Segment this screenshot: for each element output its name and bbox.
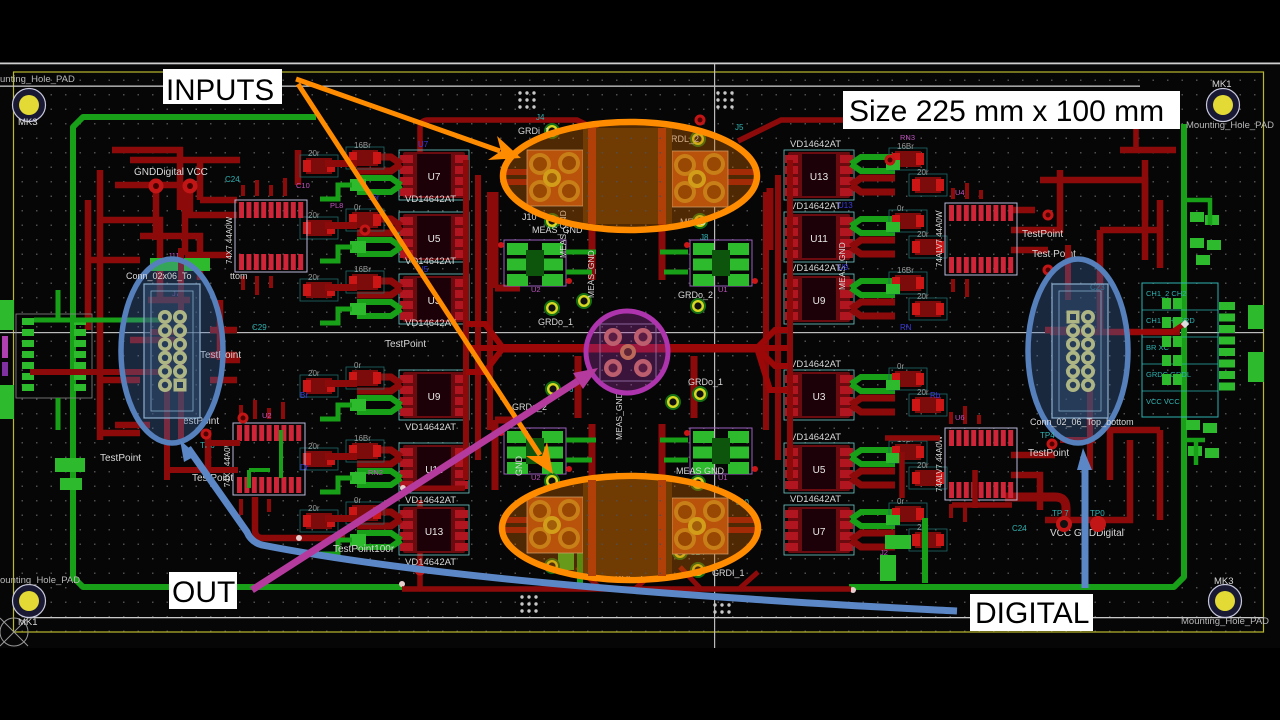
svg-text:ounting_Hole_PAD: ounting_Hole_PAD <box>0 575 80 586</box>
svg-text:unting_Hole_PAD: unting_Hole_PAD <box>0 74 75 85</box>
svg-text:TestPoint100r: TestPoint100r <box>333 544 395 555</box>
svg-text:16Br: 16Br <box>354 265 371 274</box>
svg-text:U2: U2 <box>531 285 541 294</box>
svg-text:RN2: RN2 <box>368 468 383 477</box>
svg-text:CH1_2 CH2: CH1_2 CH2 <box>1146 289 1186 298</box>
svg-text:DIGITAL: DIGITAL <box>975 597 1089 630</box>
svg-text:VD14642AT: VD14642AT <box>405 194 456 205</box>
svg-text:U5: U5 <box>428 234 441 245</box>
svg-text:Conn_02_06_Top_bottom: Conn_02_06_Top_bottom <box>1030 417 1134 427</box>
svg-text:GND: GND <box>514 456 524 477</box>
svg-text:RN: RN <box>900 323 912 332</box>
svg-text:Mounting_Hole_PAD: Mounting_Hole_PAD <box>1181 616 1269 627</box>
svg-text:U2: U2 <box>262 411 272 420</box>
svg-text:16Br: 16Br <box>897 142 914 151</box>
svg-text:U7: U7 <box>418 140 429 149</box>
svg-text:Br: Br <box>300 391 308 400</box>
svg-text:VD14642AT: VD14642AT <box>790 432 841 443</box>
svg-text:U3: U3 <box>813 392 826 403</box>
svg-text:TestPoint: TestPoint <box>1022 229 1063 240</box>
svg-text:C29: C29 <box>252 323 267 332</box>
svg-text:Dr: Dr <box>300 463 309 472</box>
svg-text:GRDo_1: GRDo_1 <box>688 377 723 387</box>
svg-text:GRDo_1: GRDo_1 <box>538 317 573 327</box>
svg-text:TestPoint: TestPoint <box>385 339 426 350</box>
svg-text:0r: 0r <box>897 204 904 213</box>
svg-text:20r: 20r <box>917 168 929 177</box>
svg-text:20r: 20r <box>308 442 320 451</box>
svg-text:U11: U11 <box>810 234 828 245</box>
svg-text:U7: U7 <box>428 172 441 183</box>
svg-text:20r: 20r <box>917 461 929 470</box>
svg-text:Rb: Rb <box>930 391 941 400</box>
svg-text:0r: 0r <box>354 496 361 505</box>
svg-text:J2: J2 <box>880 548 888 557</box>
svg-text:RN3: RN3 <box>900 133 915 142</box>
svg-text:20r: 20r <box>308 149 320 158</box>
svg-text:20r: 20r <box>917 292 929 301</box>
svg-text:U9: U9 <box>813 296 826 307</box>
svg-text:TestPoint: TestPoint <box>1028 448 1069 459</box>
svg-text:J5: J5 <box>735 123 744 132</box>
svg-text:VD14642AT: VD14642AT <box>790 139 841 150</box>
svg-text:J4: J4 <box>536 113 545 122</box>
svg-text:20r: 20r <box>917 388 929 397</box>
svg-text:VD14642AT: VD14642AT <box>790 494 841 505</box>
svg-text:VD14642AT: VD14642AT <box>790 201 841 212</box>
svg-text:TP0: TP0 <box>1090 509 1105 518</box>
svg-text:U9: U9 <box>838 263 849 272</box>
svg-text:U1: U1 <box>718 473 728 482</box>
svg-text:J8: J8 <box>700 233 709 242</box>
svg-text:VD14642AT: VD14642AT <box>405 422 456 433</box>
svg-text:74X7.44A0W: 74X7.44A0W <box>225 216 234 264</box>
svg-text:TP 7: TP 7 <box>1052 509 1069 518</box>
svg-text:GRDo_2: GRDo_2 <box>678 290 713 300</box>
svg-text:16Br: 16Br <box>354 141 371 150</box>
svg-text:U13: U13 <box>838 201 853 210</box>
svg-text:U4: U4 <box>955 188 965 197</box>
svg-text:20r: 20r <box>308 504 320 513</box>
svg-text:74ALV7.44A0W: 74ALV7.44A0W <box>935 435 944 492</box>
svg-text:20r: 20r <box>308 273 320 282</box>
svg-text:16Br: 16Br <box>354 434 371 443</box>
svg-text:INPUTS: INPUTS <box>166 74 274 107</box>
svg-text:0r: 0r <box>354 203 361 212</box>
svg-text:PL8: PL8 <box>330 201 343 210</box>
svg-text:VD14642AT: VD14642AT <box>405 495 456 506</box>
svg-text:74ALV7.44A0W: 74ALV7.44A0W <box>935 210 944 267</box>
svg-text:0r: 0r <box>897 362 904 371</box>
svg-text:C24: C24 <box>225 175 240 184</box>
svg-text:U9: U9 <box>428 392 441 403</box>
svg-text:Conn_02x06_To: Conn_02x06_To <box>126 271 192 281</box>
svg-text:Mounting_Hole_PAD: Mounting_Hole_PAD <box>1186 120 1274 131</box>
svg-text:20r: 20r <box>308 211 320 220</box>
svg-text:U6: U6 <box>955 413 965 422</box>
svg-text:MK1: MK1 <box>18 617 38 628</box>
svg-text:MK3: MK3 <box>18 117 38 128</box>
svg-text:MEAS_GND: MEAS_GND <box>614 392 624 440</box>
svg-text:U13: U13 <box>810 172 829 183</box>
svg-text:20r: 20r <box>917 230 929 239</box>
svg-text:U7: U7 <box>813 527 826 538</box>
svg-text:Size 225 mm x 100 mm: Size 225 mm x 100 mm <box>849 95 1164 128</box>
svg-text:MK3: MK3 <box>1214 576 1234 587</box>
svg-text:MK1: MK1 <box>1212 79 1232 90</box>
svg-text:VD14642AT: VD14642AT <box>790 263 841 274</box>
svg-text:VD14642AT: VD14642AT <box>790 359 841 370</box>
svg-text:MEAS_GND: MEAS_GND <box>586 250 596 298</box>
svg-text:C10: C10 <box>296 181 310 190</box>
svg-text:U13: U13 <box>425 527 444 538</box>
svg-text:ttom: ttom <box>230 271 248 281</box>
svg-text:C24: C24 <box>1012 524 1027 533</box>
svg-text:VCC VCC: VCC VCC <box>1146 397 1180 406</box>
svg-text:GNDDigital VCC: GNDDigital VCC <box>134 167 208 178</box>
svg-text:20r: 20r <box>308 369 320 378</box>
svg-text:16Br: 16Br <box>897 266 914 275</box>
svg-text:U2: U2 <box>531 473 541 482</box>
svg-text:U1: U1 <box>718 285 728 294</box>
svg-text:OUT: OUT <box>172 576 235 609</box>
svg-text:VD14642AT: VD14642AT <box>405 318 456 329</box>
svg-text:0r: 0r <box>354 361 361 370</box>
svg-text:U5: U5 <box>813 465 826 476</box>
svg-text:0r: 0r <box>897 497 904 506</box>
svg-text:TestPoint: TestPoint <box>100 453 141 464</box>
